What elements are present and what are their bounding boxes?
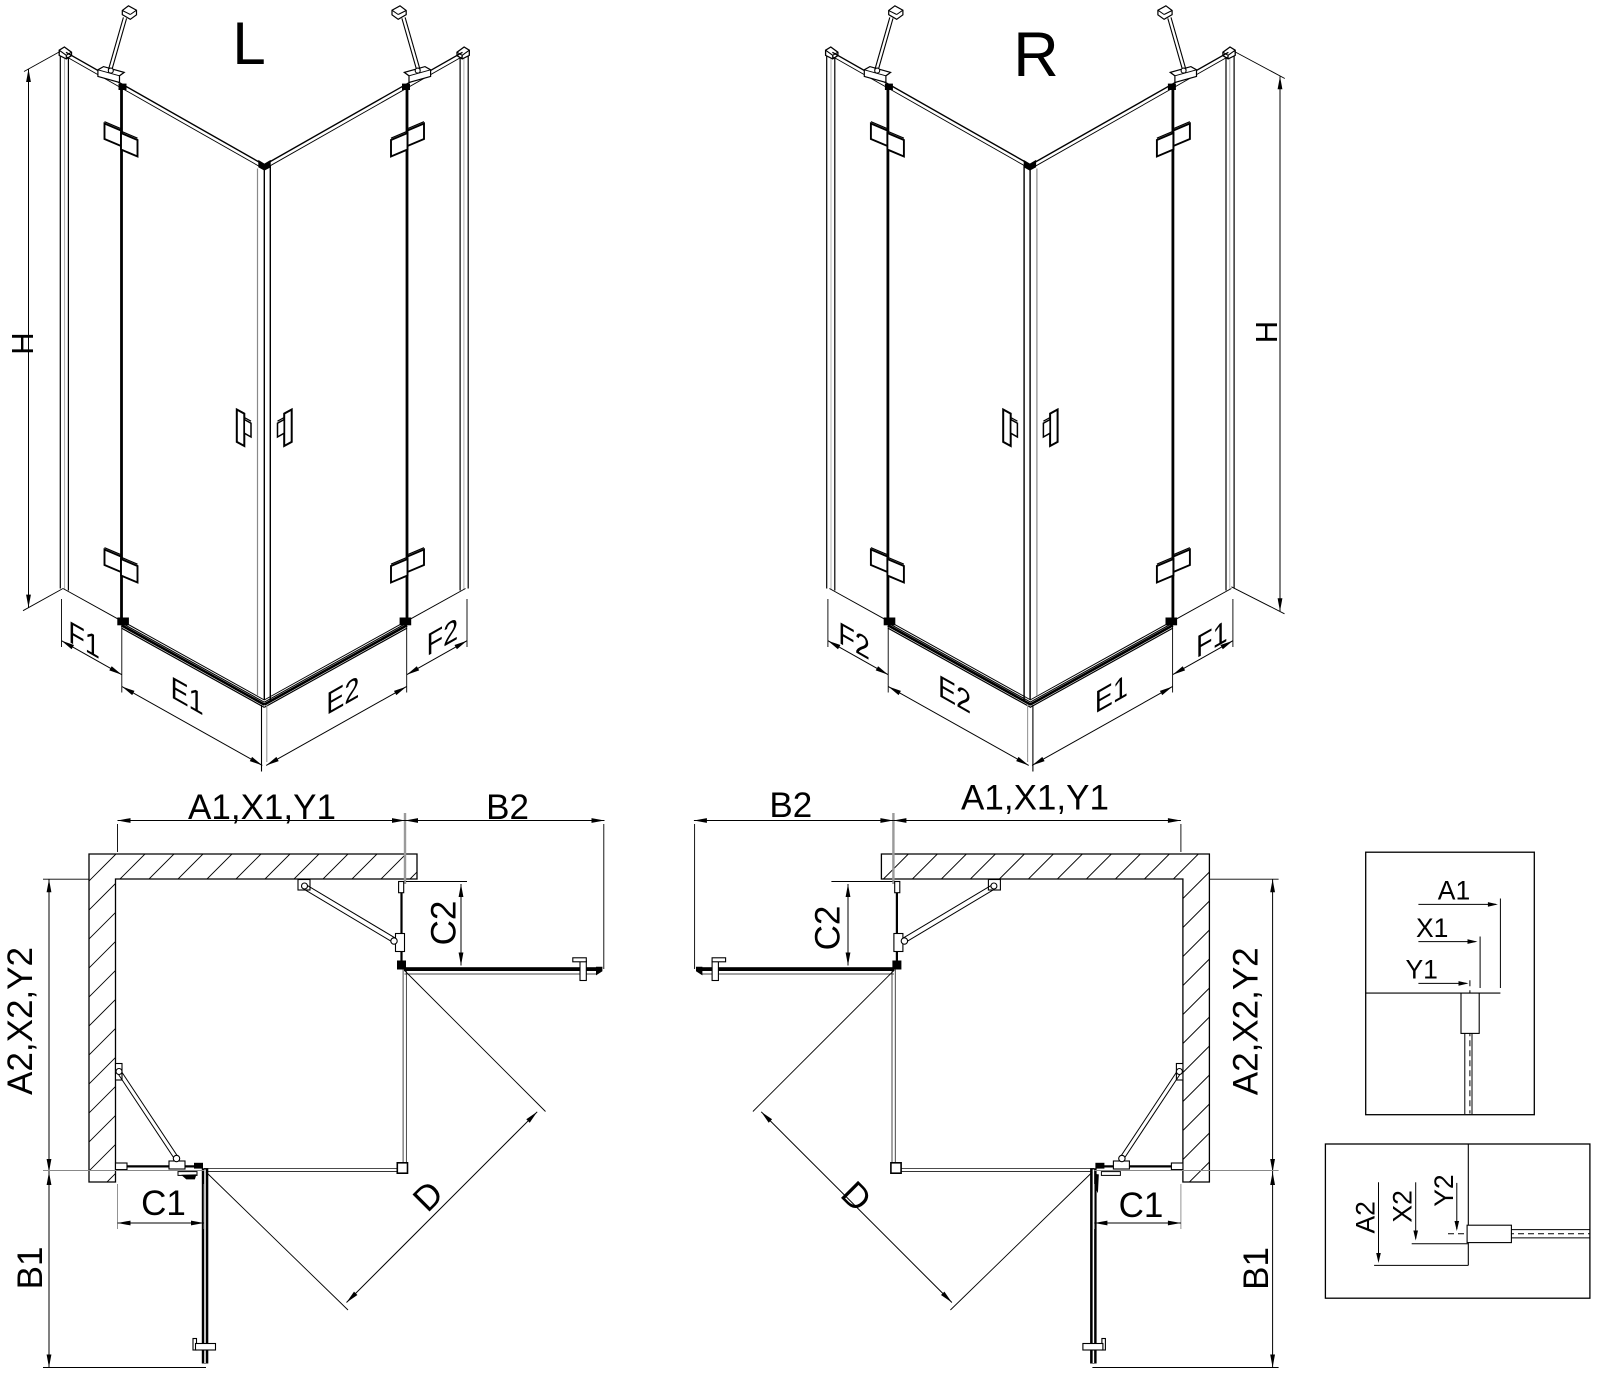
svg-text:D: D — [406, 1174, 451, 1219]
svg-text:C1: C1 — [141, 1184, 186, 1223]
svg-text:B2: B2 — [769, 786, 812, 825]
svg-text:A1,X1,Y1: A1,X1,Y1 — [188, 788, 336, 827]
svg-text:L: L — [232, 10, 265, 77]
svg-text:E1: E1 — [171, 669, 204, 723]
svg-text:A2,X2,Y2: A2,X2,Y2 — [1, 947, 40, 1095]
svg-text:H: H — [5, 332, 40, 354]
svg-text:C2: C2 — [425, 901, 464, 946]
svg-text:D: D — [833, 1174, 878, 1219]
svg-text:B1: B1 — [1237, 1247, 1276, 1290]
svg-text:A1: A1 — [1438, 876, 1470, 906]
svg-text:B1: B1 — [11, 1247, 50, 1290]
svg-text:H: H — [1249, 321, 1284, 343]
svg-text:C2: C2 — [809, 906, 848, 951]
svg-text:A2,X2,Y2: A2,X2,Y2 — [1227, 947, 1266, 1095]
svg-text:E2: E2 — [326, 669, 359, 723]
svg-text:X2: X2 — [1388, 1190, 1418, 1222]
svg-text:F2: F2 — [427, 610, 458, 663]
svg-text:R: R — [1013, 20, 1059, 90]
svg-text:X1: X1 — [1416, 913, 1448, 943]
svg-text:E2: E2 — [938, 668, 971, 722]
svg-text:F2: F2 — [838, 614, 869, 667]
svg-text:A1,X1,Y1: A1,X1,Y1 — [961, 779, 1109, 818]
svg-text:C1: C1 — [1119, 1186, 1164, 1225]
svg-text:F1: F1 — [68, 613, 99, 666]
svg-text:Y1: Y1 — [1405, 954, 1437, 984]
svg-text:Y2: Y2 — [1429, 1174, 1459, 1206]
svg-text:A2: A2 — [1351, 1201, 1381, 1233]
svg-text:B2: B2 — [486, 788, 529, 827]
svg-text:E1: E1 — [1095, 667, 1128, 721]
svg-text:F1: F1 — [1196, 612, 1227, 665]
